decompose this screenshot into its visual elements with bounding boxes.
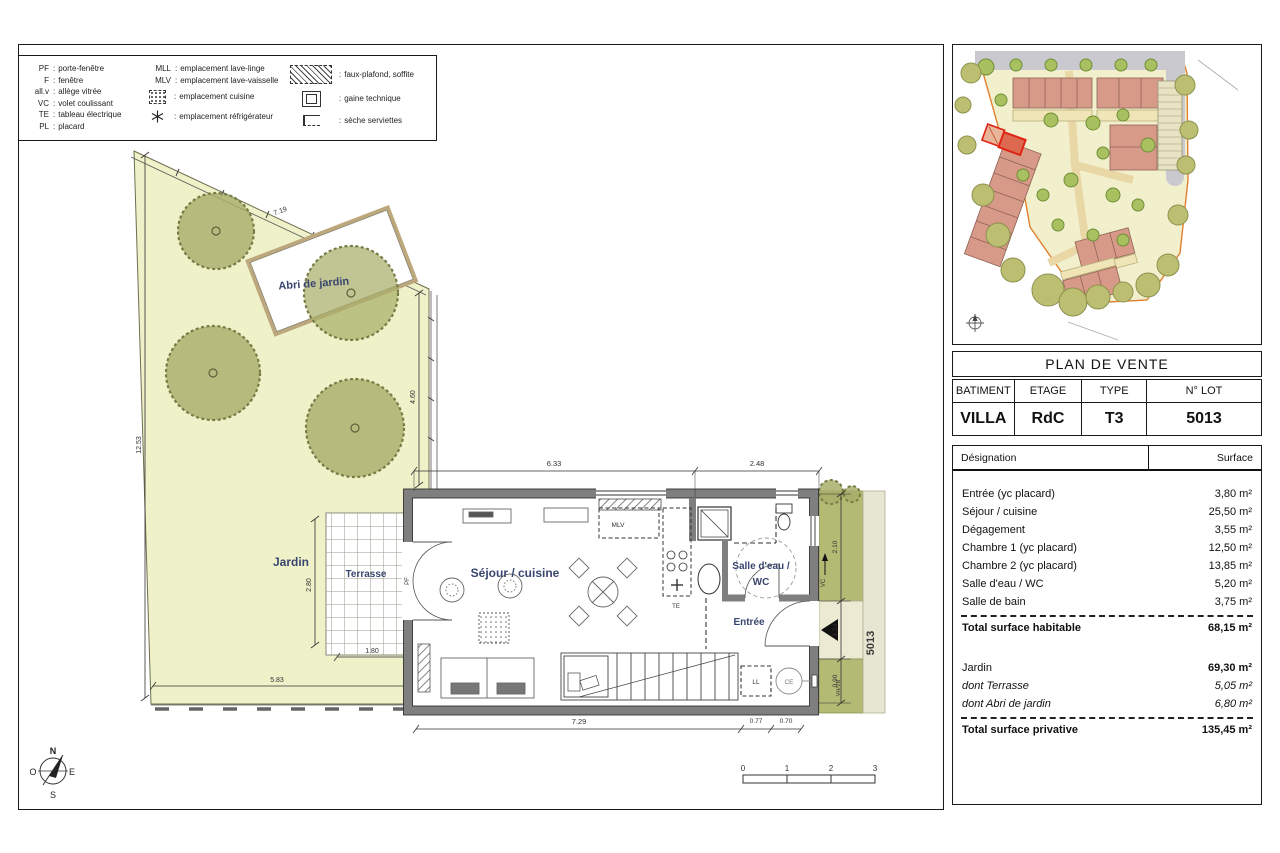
label-jardin: Jardin bbox=[273, 555, 309, 569]
dim-left-edge: 12.53 bbox=[136, 436, 143, 454]
garden-row: dont Terrasse5,05 m² bbox=[953, 677, 1261, 695]
compass-o: O bbox=[29, 767, 36, 777]
dim-right-2: 1.24 bbox=[832, 623, 839, 636]
lot-number-plan: 5013 bbox=[865, 631, 877, 655]
tag-ce: CE bbox=[784, 679, 794, 686]
tag-vc: VC bbox=[821, 578, 827, 587]
legend: PFporte-fenêtre Ffenêtre all.vallège vit… bbox=[18, 55, 437, 141]
value-type: T3 bbox=[1082, 403, 1147, 435]
kitchen-placement-icon bbox=[144, 90, 170, 104]
header-etage: ETAGE bbox=[1015, 380, 1083, 403]
value-etage: RdC bbox=[1015, 403, 1083, 435]
designation-header: Désignation bbox=[961, 452, 1016, 464]
dashed-separator bbox=[961, 717, 1253, 719]
tag-mlv: MLV bbox=[612, 522, 626, 529]
label-sejour-cuisine: Séjour / cuisine bbox=[471, 566, 560, 580]
drawing-frame: Abri de jardin 7.19 12.53 4.60 5.83 Jard… bbox=[18, 44, 944, 810]
site-plan bbox=[952, 44, 1262, 345]
header-batiment: BATIMENT bbox=[953, 380, 1015, 403]
technical-duct-icon bbox=[287, 91, 335, 107]
false-ceiling-swatch-icon bbox=[287, 65, 335, 84]
table-row: Chambre 1 (yc placard)12,50 m² bbox=[953, 539, 1261, 557]
total-habitable-row: Total surface habitable68,15 m² bbox=[953, 619, 1261, 637]
dim-terrace-h: 2.80 bbox=[306, 578, 313, 592]
label-wc: WC bbox=[753, 577, 770, 588]
value-lot: 5013 bbox=[1147, 403, 1261, 435]
fridge-placement-icon bbox=[144, 110, 170, 123]
dim-garden-bottom: 5.83 bbox=[270, 677, 284, 684]
dim-shed: 7.19 bbox=[273, 206, 288, 217]
tag-pf: PF bbox=[405, 577, 411, 585]
dim-bottom-1: 7.29 bbox=[572, 717, 587, 726]
dim-top-1: 6.33 bbox=[547, 459, 562, 468]
compass-e: E bbox=[69, 767, 75, 777]
dim-right-1: 2.10 bbox=[832, 540, 839, 553]
table-row: Entrée (yc placard)3,80 m² bbox=[953, 485, 1261, 503]
table-row: Séjour / cuisine25,50 m² bbox=[953, 503, 1261, 521]
legend-col-appliances: MLLemplacement lave-linge MLVemplacement… bbox=[144, 63, 279, 123]
floor-plan-svg: Abri de jardin 7.19 12.53 4.60 5.83 Jard… bbox=[19, 45, 942, 808]
header-type: TYPE bbox=[1082, 380, 1147, 403]
towel-dryer-icon bbox=[287, 115, 335, 126]
dim-bottom-3: 0.70 bbox=[780, 718, 793, 725]
header-lot: N° LOT bbox=[1147, 380, 1261, 403]
scale-tick-1: 1 bbox=[785, 764, 790, 773]
label-terrasse: Terrasse bbox=[346, 569, 387, 580]
dim-top-2: 2.48 bbox=[750, 459, 765, 468]
table-row: Salle d'eau / WC5,20 m² bbox=[953, 575, 1261, 593]
surface-table: Désignation Surface Entrée (yc placard)3… bbox=[952, 445, 1262, 805]
scale-bar: 0 1 2 3 bbox=[741, 764, 878, 783]
dim-terrace-w: 1.80 bbox=[365, 648, 379, 655]
value-batiment: VILLA bbox=[953, 403, 1015, 435]
garden-row: Jardin69,30 m² bbox=[953, 659, 1261, 677]
scale-tick-3: 3 bbox=[873, 764, 878, 773]
legend-col-abbreviations: PFporte-fenêtre Ffenêtre all.vallège vit… bbox=[25, 63, 121, 132]
scale-tick-0: 0 bbox=[741, 764, 746, 773]
legend-col-symbols: faux-plafond, soffite gaine technique sè… bbox=[287, 65, 414, 127]
compass-icon: N S E O bbox=[29, 746, 75, 800]
label-salle-eau: Salle d'eau / bbox=[732, 561, 790, 572]
site-plan-svg bbox=[953, 45, 1260, 343]
compass-n: N bbox=[50, 746, 57, 756]
compass-s: S bbox=[50, 790, 56, 800]
surface-header: Surface bbox=[1217, 452, 1253, 464]
scale-tick-2: 2 bbox=[829, 764, 834, 773]
table-row: Chambre 2 (yc placard)13,85 m² bbox=[953, 557, 1261, 575]
garden-row: dont Abri de jardin6,80 m² bbox=[953, 695, 1261, 713]
right-side-strips bbox=[819, 480, 885, 713]
table-row: Salle de bain3,75 m² bbox=[953, 593, 1261, 611]
total-private-row: Total surface privative135,45 m² bbox=[953, 721, 1261, 739]
dim-right-garden: 4.60 bbox=[410, 390, 417, 404]
plan-title: PLAN DE VENTE bbox=[952, 351, 1262, 377]
lot-info-table: BATIMENT ETAGE TYPE N° LOT VILLA RdC T3 … bbox=[952, 379, 1262, 436]
dashed-separator bbox=[961, 615, 1253, 617]
tag-ll: LL bbox=[752, 679, 760, 686]
table-row: Dégagement3,55 m² bbox=[953, 521, 1261, 539]
terrace bbox=[311, 513, 412, 661]
tag-te: TE bbox=[672, 604, 680, 610]
dim-bottom-2: 0.77 bbox=[750, 718, 763, 725]
surface-table-header: Désignation Surface bbox=[953, 446, 1261, 471]
plan-title-text: PLAN DE VENTE bbox=[1045, 356, 1168, 372]
site-compass-icon bbox=[966, 314, 984, 332]
dim-right-3: 0.90 bbox=[832, 674, 839, 687]
label-entree: Entrée bbox=[733, 617, 765, 628]
plan-sheet: Abri de jardin 7.19 12.53 4.60 5.83 Jard… bbox=[0, 0, 1280, 853]
